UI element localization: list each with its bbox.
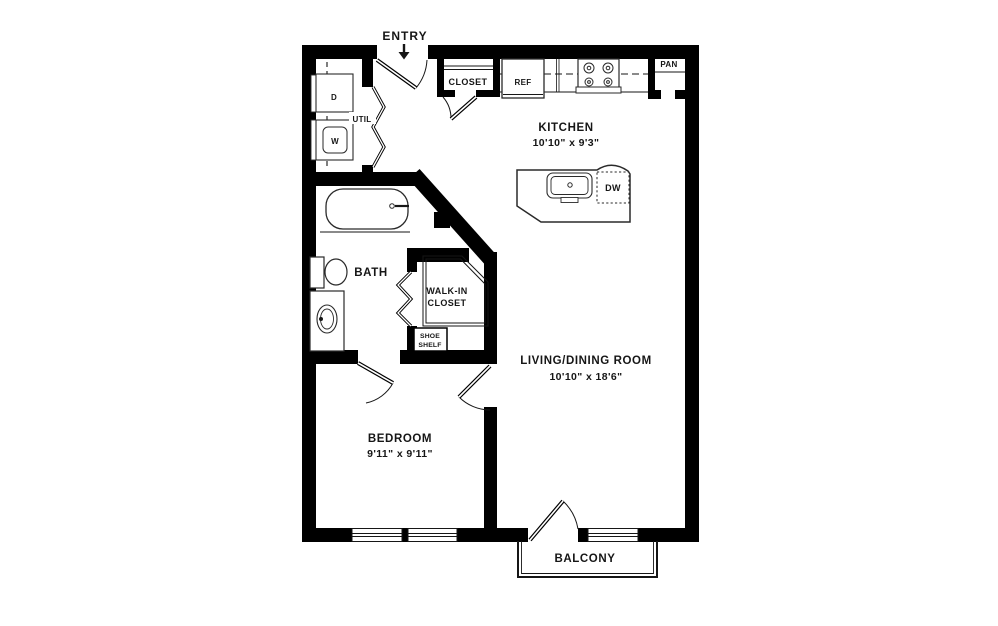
bedroom-label: BEDROOM — [368, 433, 432, 445]
dryer-label: D — [331, 93, 337, 102]
balcony-label: BALCONY — [554, 553, 615, 565]
toilet — [310, 257, 347, 288]
floor-plan: ENTRY KITCHEN 10'10" x 9'3" LIVING/DININ… — [0, 0, 998, 626]
bathtub — [320, 189, 410, 232]
refrigerator-label: REF — [515, 78, 532, 87]
walk-in-closet-label-1: WALK-IN — [426, 286, 467, 296]
utility-bifold-doors — [373, 87, 384, 167]
bedroom-window-right — [408, 529, 457, 542]
bath-label: BATH — [354, 267, 388, 279]
dryer-vent — [311, 75, 316, 112]
entry-door — [377, 60, 427, 88]
living-room-label: LIVING/DINING ROOM — [520, 355, 652, 367]
shoe-shelf-label-2: SHELF — [418, 342, 441, 349]
island-sink — [547, 173, 592, 203]
walk-in-closet-label-2: CLOSET — [428, 298, 467, 308]
bedroom-door — [459, 366, 490, 410]
entry-label: ENTRY — [382, 29, 427, 43]
dishwasher-label: DW — [605, 183, 621, 193]
entry-closet-label: CLOSET — [449, 77, 488, 87]
kitchen-label: KITCHEN — [538, 122, 593, 134]
bath-door — [358, 363, 393, 403]
balcony-door — [530, 501, 578, 540]
bedroom-dims: 9'11" x 9'11" — [367, 448, 433, 460]
washer-vent — [311, 120, 316, 160]
kitchen-dims: 10'10" x 9'3" — [533, 137, 600, 149]
kitchen-island — [517, 165, 630, 222]
util-label: UTIL — [353, 115, 372, 124]
bath-vanity-sink — [310, 291, 344, 351]
walk-in-closet-bifold-doors — [398, 272, 411, 326]
washer-label: W — [331, 137, 339, 146]
entry-arrow-icon — [399, 44, 410, 60]
bedroom-window-left — [352, 529, 402, 542]
shoe-shelf-label-1: SHOE — [420, 333, 440, 340]
entry-closet-door — [443, 97, 476, 119]
stove — [576, 59, 621, 93]
living-room-window — [588, 529, 638, 542]
living-room-dims: 10'10" x 18'6" — [549, 371, 622, 383]
entry-closet-shelf — [444, 66, 493, 70]
pantry-label: PAN — [660, 60, 677, 69]
